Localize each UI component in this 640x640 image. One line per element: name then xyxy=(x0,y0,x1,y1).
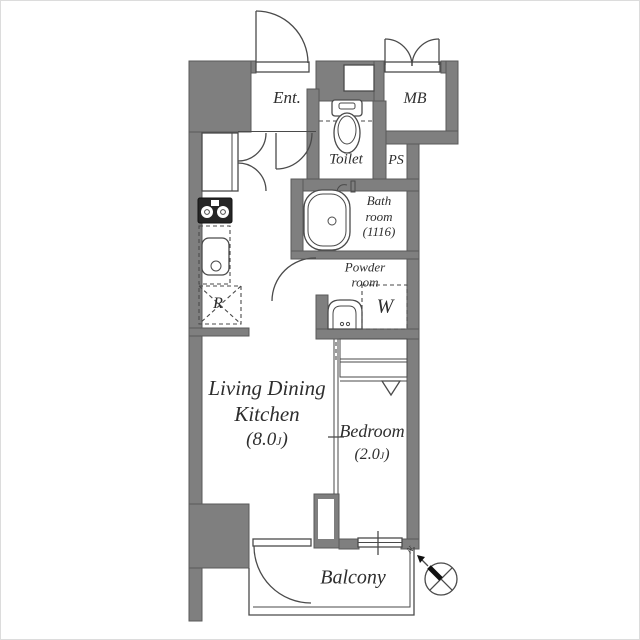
vanity-sink xyxy=(328,300,362,329)
washer-space-label: W xyxy=(377,296,394,319)
ldk-label: Living Dining Kitchen (8.0J) xyxy=(208,375,325,455)
entrance-opening xyxy=(256,62,309,72)
bedroom-label: Bedroom (2.0J) xyxy=(339,420,404,468)
compass-icon xyxy=(417,555,457,595)
shoe-closet xyxy=(202,133,266,191)
toilet-fixture xyxy=(319,100,373,153)
meter-box-label: MB xyxy=(403,90,426,108)
pillar-duct xyxy=(318,499,334,539)
toilet-label: Toilet xyxy=(329,151,363,168)
balcony-label: Balcony xyxy=(320,567,386,590)
floor-plan-linework xyxy=(1,1,639,639)
refrigerator-space-label: R xyxy=(213,295,223,313)
entrance-door-swing xyxy=(256,11,308,63)
entry-niche xyxy=(344,65,374,91)
powder-room-door-swing xyxy=(272,258,316,301)
pipe-space-label: PS xyxy=(388,153,404,169)
floor-plan: Ent. MB Toilet PS Bath room (1116) Powde… xyxy=(0,0,640,640)
powder-room-label: Powder room xyxy=(345,261,385,290)
balcony-door-swing xyxy=(253,539,311,603)
bedroom-window xyxy=(358,531,402,555)
bathroom-label: Bath room (1116) xyxy=(363,193,396,240)
kitchen-sink xyxy=(199,226,230,284)
stove-icon xyxy=(198,198,232,223)
bedroom-closet xyxy=(340,339,407,395)
entrance-label: Ent. xyxy=(273,88,301,108)
